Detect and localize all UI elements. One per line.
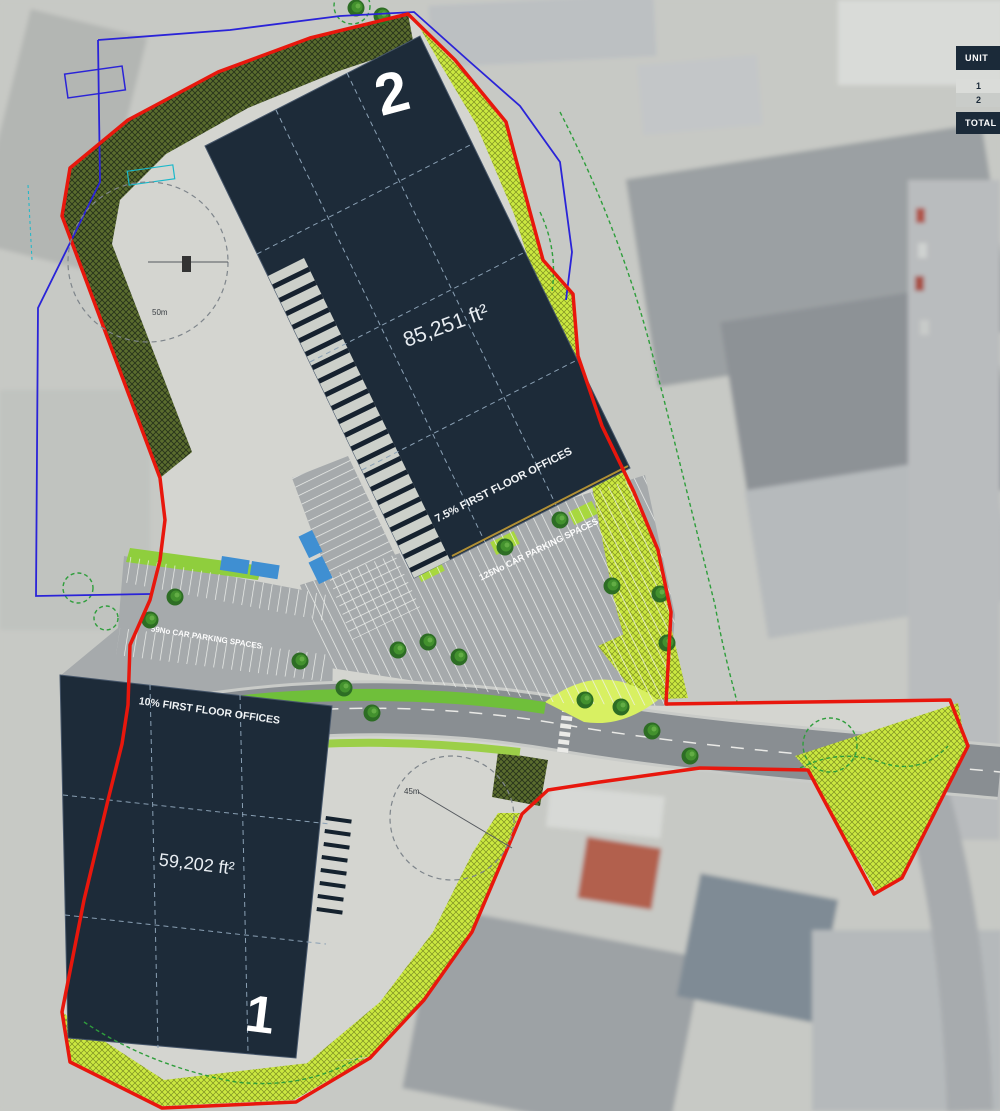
site-plan-canvas: 2 85,251 ft² 7.5% FIRST FLOOR OFFICES 1 … — [0, 0, 1000, 1111]
turning-circle-45m-label: 45m — [404, 787, 420, 796]
legend-footer-total: TOTAL — [956, 112, 1000, 134]
legend-row-unit-2: 2 — [956, 93, 1000, 107]
truck-icon — [182, 256, 191, 272]
legend-header-unit: UNIT — [956, 46, 1000, 70]
turning-circle-50m-label: 50m — [152, 308, 168, 317]
legend-row-unit-1: 1 — [956, 79, 1000, 93]
legend-table: UNIT 1 2 TOTAL — [956, 46, 1000, 134]
